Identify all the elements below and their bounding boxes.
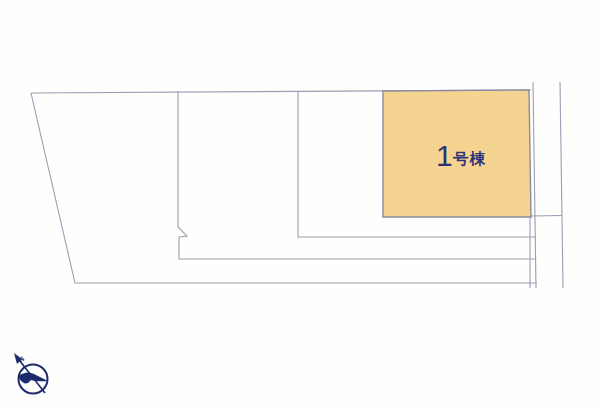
compass-icon: N [14,353,48,394]
plot-bottom-extension-line [531,216,562,217]
road-line-outer [560,82,563,288]
compass-bird-shape [18,372,48,383]
site-plan-canvas: 1 号棟 N [0,0,600,409]
site-plan-drawing: 1 号棟 N [0,0,600,409]
plot-1-label-number: 1 [436,139,453,172]
plot-1-label-suffix: 号棟 [452,150,487,167]
road-line-inner [533,82,536,288]
